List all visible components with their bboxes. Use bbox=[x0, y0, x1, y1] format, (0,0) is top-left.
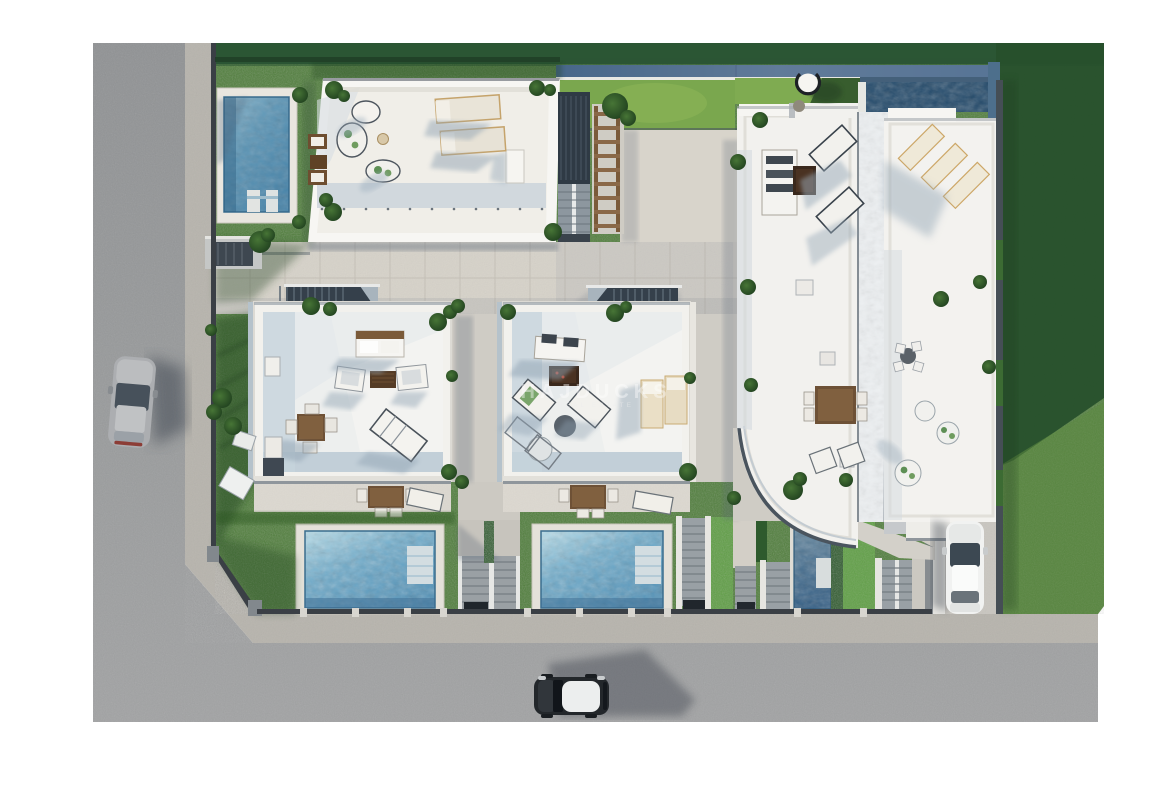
svg-text:HAJDUCKS: HAJDUCKS bbox=[520, 381, 671, 403]
svg-text:REAL ESTATE: REAL ESTATE bbox=[558, 402, 634, 409]
